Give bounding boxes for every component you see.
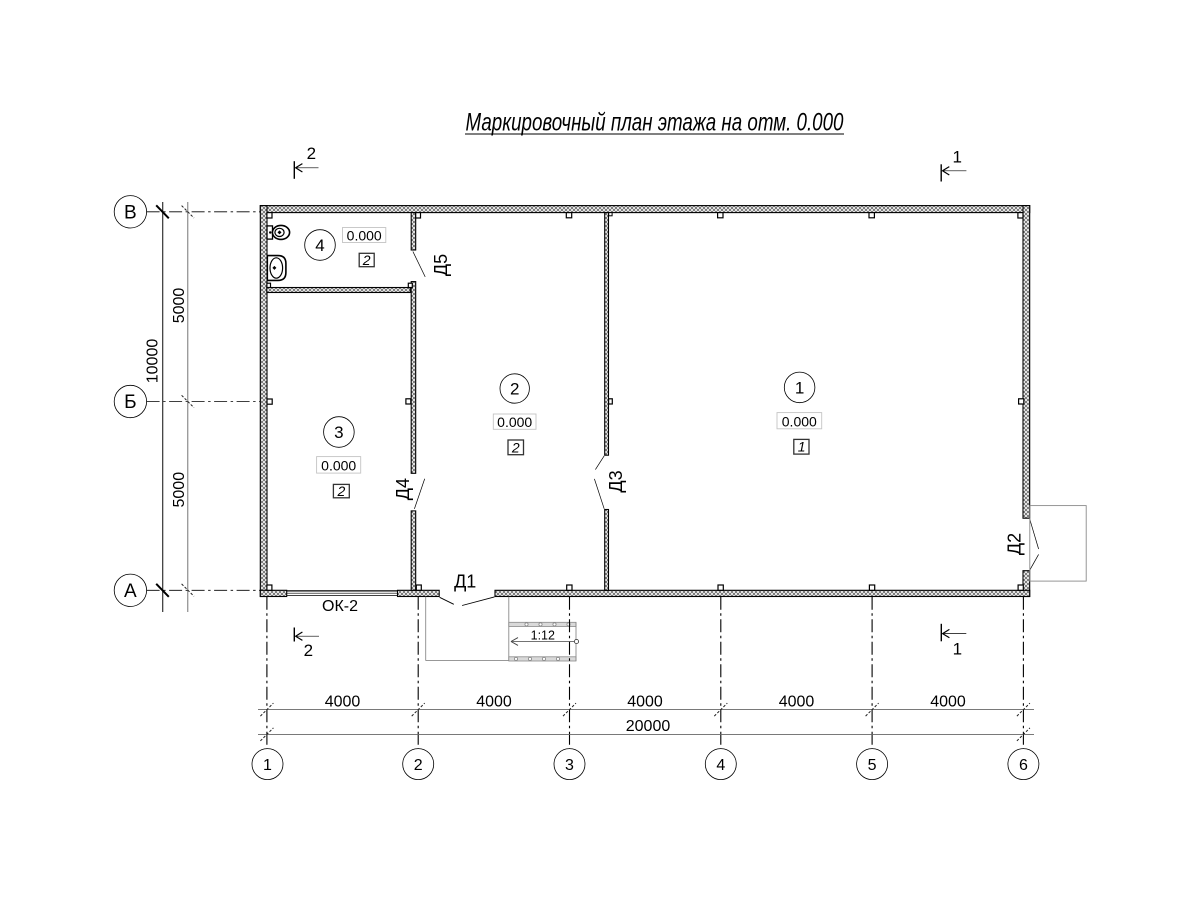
svg-text:Маркировочный план этажа на от: Маркировочный план этажа на отм. 0.000 bbox=[466, 109, 844, 137]
svg-text:0.000: 0.000 bbox=[497, 414, 532, 430]
svg-text:2: 2 bbox=[362, 252, 371, 268]
svg-text:5000: 5000 bbox=[171, 288, 188, 324]
svg-text:6: 6 bbox=[1019, 757, 1028, 774]
svg-text:2: 2 bbox=[510, 380, 519, 399]
svg-text:Д3: Д3 bbox=[606, 470, 626, 492]
svg-text:Б: Б bbox=[124, 392, 136, 413]
svg-text:3: 3 bbox=[334, 423, 343, 442]
svg-text:4000: 4000 bbox=[476, 694, 512, 711]
svg-text:1:12: 1:12 bbox=[531, 628, 555, 642]
svg-text:Д2: Д2 bbox=[1005, 533, 1025, 555]
svg-text:3: 3 bbox=[565, 757, 574, 774]
svg-text:2: 2 bbox=[414, 757, 423, 774]
svg-text:4000: 4000 bbox=[325, 694, 361, 711]
svg-text:ОК-2: ОК-2 bbox=[322, 598, 358, 615]
svg-text:0.000: 0.000 bbox=[347, 227, 382, 243]
svg-text:20000: 20000 bbox=[626, 718, 671, 735]
svg-text:10000: 10000 bbox=[145, 339, 162, 384]
svg-text:4: 4 bbox=[716, 757, 725, 774]
svg-text:2: 2 bbox=[304, 641, 313, 660]
svg-text:4000: 4000 bbox=[627, 694, 663, 711]
svg-text:4000: 4000 bbox=[779, 694, 815, 711]
svg-text:1: 1 bbox=[263, 757, 272, 774]
svg-text:В: В bbox=[124, 202, 137, 223]
svg-text:2: 2 bbox=[511, 439, 520, 455]
svg-text:А: А bbox=[124, 581, 137, 602]
svg-text:4000: 4000 bbox=[930, 694, 966, 711]
svg-text:4: 4 bbox=[315, 236, 324, 255]
svg-text:1: 1 bbox=[798, 439, 806, 455]
svg-text:2: 2 bbox=[337, 483, 346, 499]
svg-text:1: 1 bbox=[953, 640, 962, 659]
svg-text:5000: 5000 bbox=[171, 472, 188, 508]
svg-text:2: 2 bbox=[307, 144, 316, 163]
svg-text:0.000: 0.000 bbox=[321, 457, 356, 473]
svg-text:0.000: 0.000 bbox=[782, 413, 817, 429]
svg-text:Д5: Д5 bbox=[431, 254, 451, 276]
svg-text:Д4: Д4 bbox=[393, 478, 413, 500]
svg-text:1: 1 bbox=[795, 379, 804, 398]
svg-text:5: 5 bbox=[868, 757, 877, 774]
svg-text:Д1: Д1 bbox=[454, 571, 476, 591]
svg-text:1: 1 bbox=[952, 148, 961, 167]
